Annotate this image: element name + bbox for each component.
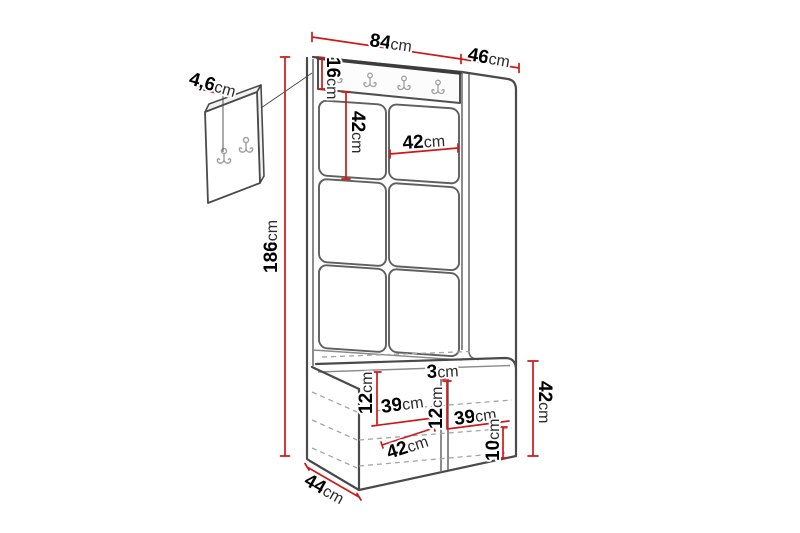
dim-divider-width: 3cm — [426, 360, 459, 383]
dim-bottom-panel-height: 10cm — [483, 419, 504, 461]
dim-panel-height: 42cm — [347, 111, 368, 153]
upholstered-panel — [319, 179, 386, 267]
dim-rail-height: 16cm — [322, 57, 343, 99]
dim-line-left-compartment-width — [372, 418, 433, 426]
dim-panel-width: 42cm — [402, 130, 446, 154]
unit-left-edge — [307, 58, 310, 461]
diagram-canvas: 84cm 46cm 16cm 42cm 42cm 186cm 4,6cm 12c… — [0, 0, 800, 533]
hidden-edge — [312, 392, 357, 412]
dim-wall-panel-thickness: 4,6cm — [187, 69, 239, 102]
back-panel-right-edge-outer — [469, 74, 479, 360]
hidden-edge — [312, 420, 357, 440]
diagram-page: 84cm 46cm 16cm 42cm 42cm 186cm 4,6cm 12c… — [0, 0, 800, 533]
upholstered-panel — [389, 269, 459, 357]
dim-left-compartment-width: 39cm — [380, 391, 425, 418]
dim-total-depth: 46cm — [466, 44, 511, 72]
dim-bench-depth: 44cm — [301, 470, 348, 509]
hallway-unit — [307, 57, 516, 490]
leader-line — [261, 73, 312, 108]
upholstered-panel — [319, 265, 386, 353]
dim-total-width: 84cm — [368, 30, 413, 57]
bench-seat-bottom-edge — [318, 366, 510, 373]
dim-total-height: 186cm — [261, 220, 282, 273]
dim-left-compartment-height: 12cm — [356, 372, 377, 414]
dim-right-compartment-height: 12cm — [426, 387, 447, 429]
upholstered-panel — [389, 183, 459, 271]
dim-bench-height: 42cm — [534, 381, 555, 423]
